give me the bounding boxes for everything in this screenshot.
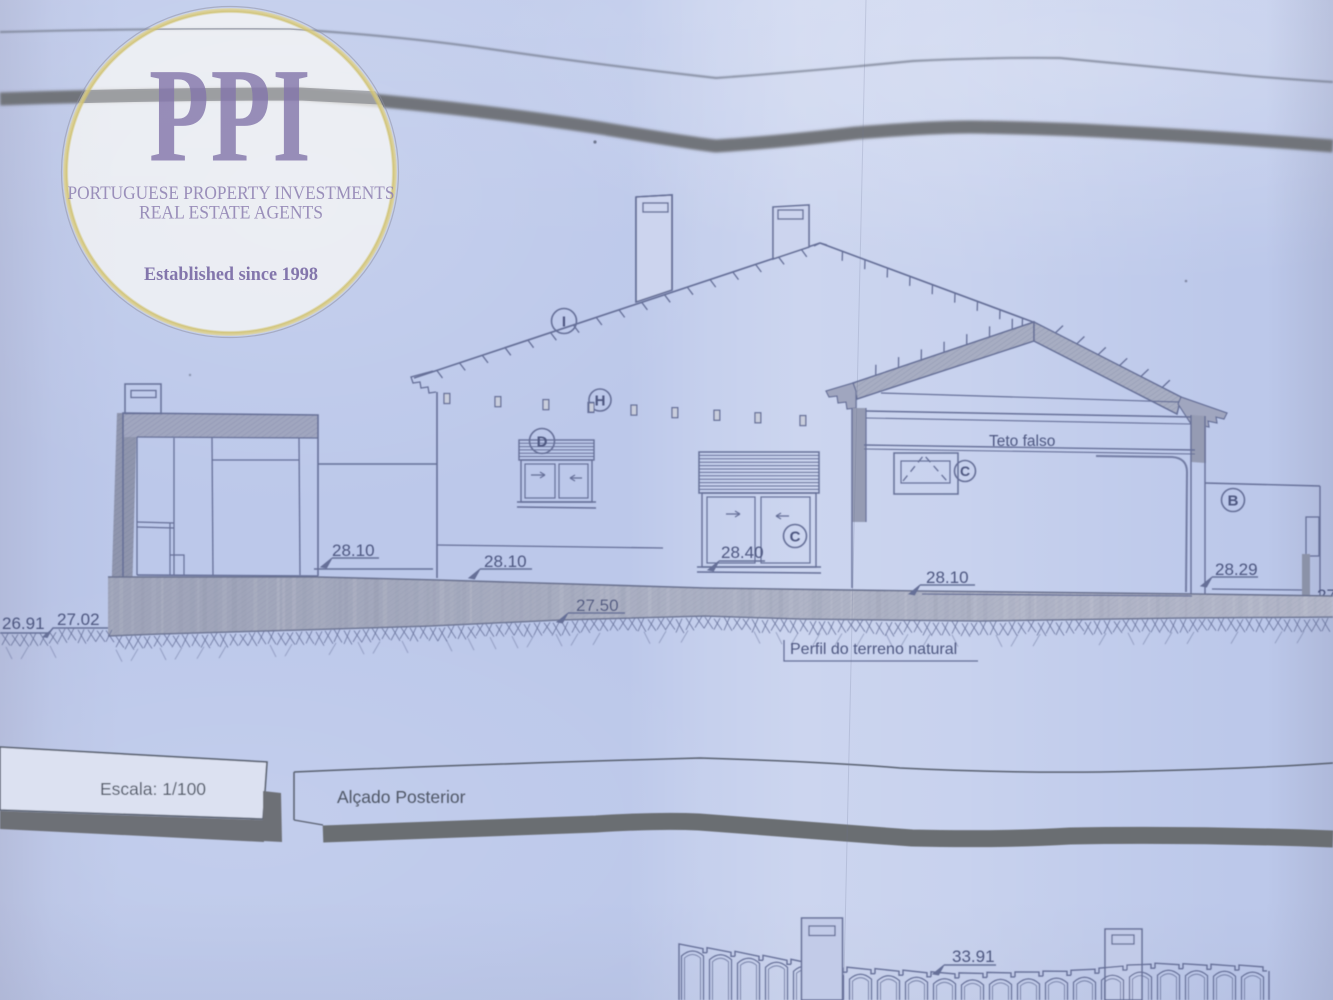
svg-text:Established since 1998: Established since 1998	[144, 265, 318, 285]
svg-text:PPI: PPI	[149, 41, 312, 191]
svg-text:PORTUGUESE PROPERTY INVESTMENT: PORTUGUESE PROPERTY INVESTMENTS	[68, 183, 395, 204]
svg-text:REAL ESTATE AGENTS: REAL ESTATE AGENTS	[139, 203, 323, 224]
